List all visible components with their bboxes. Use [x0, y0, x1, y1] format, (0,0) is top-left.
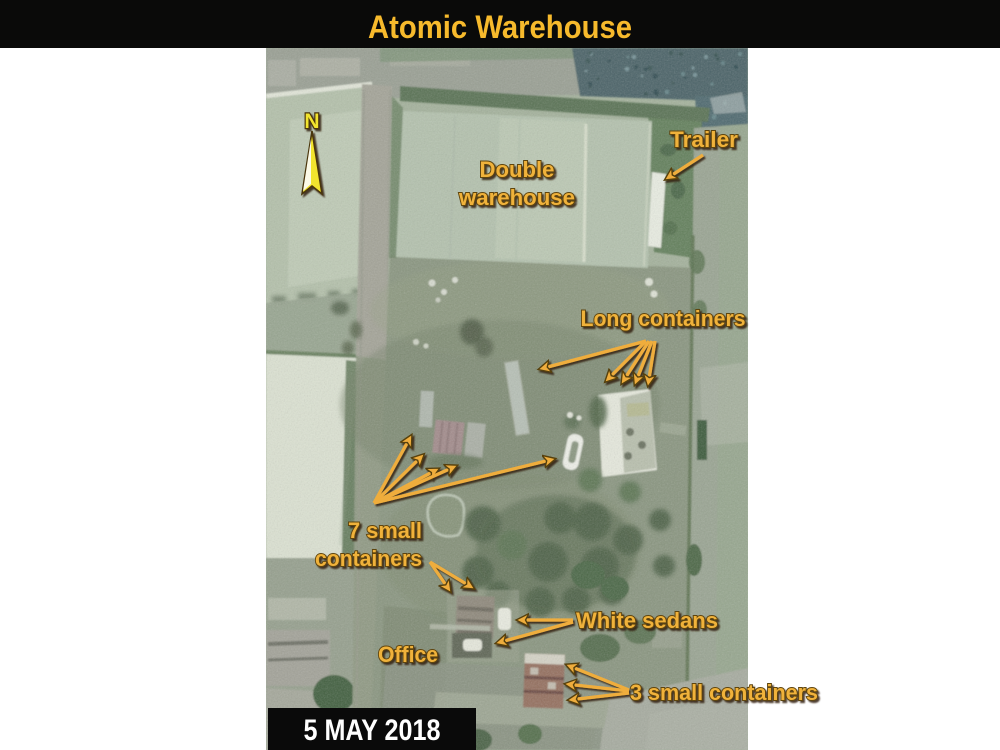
svg-text:N: N: [304, 110, 319, 133]
svg-text:Double: Double: [480, 157, 555, 182]
svg-text:5 MAY 2018: 5 MAY 2018: [304, 714, 441, 747]
svg-text:warehouse: warehouse: [458, 185, 575, 210]
svg-text:Office: Office: [378, 642, 438, 667]
svg-text:Long containers: Long containers: [581, 306, 746, 331]
svg-text:containers: containers: [315, 546, 422, 571]
svg-text:White sedans: White sedans: [576, 608, 718, 633]
svg-text:3 small containers: 3 small containers: [630, 680, 818, 705]
svg-text:Trailer: Trailer: [670, 127, 738, 152]
svg-text:7 small: 7 small: [348, 518, 422, 543]
svg-text:Atomic Warehouse: Atomic Warehouse: [368, 9, 632, 45]
